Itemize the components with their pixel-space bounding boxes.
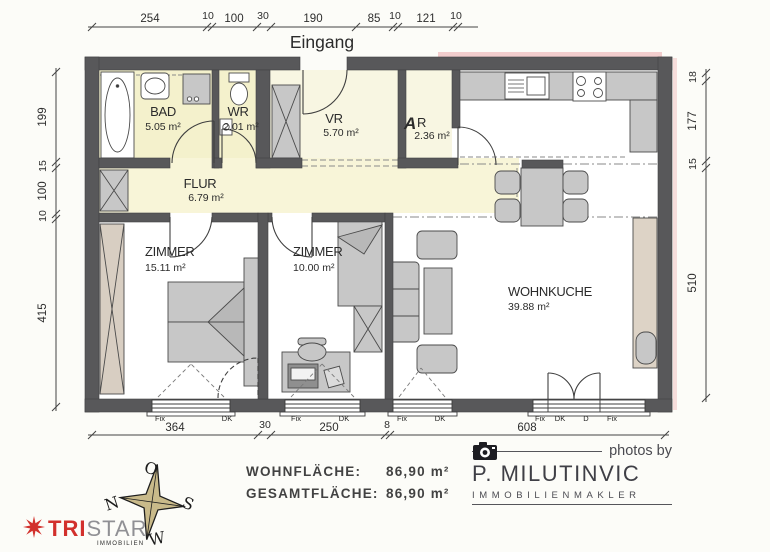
wall-left [85, 57, 99, 412]
w4-d-label: D [583, 414, 589, 423]
agent-subtitle: IMMOBILIENMAKLER [472, 490, 672, 501]
scan-artifact-right [673, 58, 677, 410]
entrance-label: Eingang [290, 32, 354, 52]
dim-right-15: 15 [687, 158, 699, 170]
tristar-logo: TRISTAR IMMOBILIEN [23, 516, 148, 547]
dim-bottom-8: 8 [384, 419, 390, 431]
living-area-row: WOHNFLÄCHE: 86,90 m² [246, 464, 450, 479]
wall-right [658, 57, 672, 412]
room-wohnkueche-name: WOHNKUCHE [508, 284, 593, 299]
w1-dk-label: DK [222, 414, 232, 423]
dim-bottom-608: 608 [517, 422, 536, 434]
w1-fix-label: Fix [155, 414, 165, 423]
camera-icon [473, 442, 497, 460]
room-flur-area: 6.79 m² [188, 192, 224, 204]
room-vr-name: VR [325, 111, 342, 126]
w2-fix-label: Fix [291, 414, 301, 423]
dim-left-15: 15 [37, 160, 49, 172]
bathroom-sink [141, 73, 169, 99]
w3-fix-label: Fix [397, 414, 407, 423]
w2-dk-label: DK [339, 414, 349, 423]
room-ar-name: R [417, 115, 426, 130]
room-zimmer1-name: ZIMMER [145, 244, 194, 259]
dim-left-10: 10 [37, 210, 49, 222]
dim-bottom-30: 30 [259, 419, 271, 431]
total-area-label: GESAMTFLÄCHE: [246, 486, 386, 501]
bathtub [101, 72, 134, 158]
tristar-subtitle: IMMOBILIEN [97, 541, 144, 547]
dim-top-254: 254 [140, 13, 160, 25]
compass-north-label: N [102, 492, 121, 514]
dim-left-415: 415 [37, 303, 49, 322]
bedroom1-wardrobe [100, 224, 124, 394]
armchair-bottom [417, 345, 457, 373]
dim-top-10b: 10 [389, 10, 401, 22]
washing-machine [183, 74, 210, 104]
room-ar-area: 2.36 m² [414, 130, 450, 142]
wall-top-left [85, 57, 300, 70]
room-bad-area: 5.05 m² [145, 121, 181, 133]
room-zimmer2-area: 10.00 m² [293, 262, 335, 274]
kitchen-sink [505, 73, 549, 99]
agent-name-left: P. MILUTIN [472, 461, 599, 487]
dim-top-10c: 10 [450, 10, 462, 22]
living-area-value: 86,90 m² [386, 464, 450, 479]
room-wr-name: WR [227, 104, 248, 119]
dim-bottom-250: 250 [319, 422, 338, 434]
dim-top-85: 85 [368, 13, 381, 25]
single-bed [338, 221, 382, 306]
agent-name-right: VIC [599, 461, 640, 487]
dim-left-100: 100 [37, 181, 49, 200]
dim-top-30: 30 [257, 10, 269, 22]
bedroom2-wardrobe [354, 306, 382, 352]
total-area-row: GESAMTFLÄCHE: 86,90 m² [246, 486, 450, 501]
broker-logo: photos by P. MILUTIN VIC IMMOBILIENMAKLE… [472, 442, 672, 505]
floorplan-page: 254 10 100 30 190 85 10 121 10 199 15 10… [0, 0, 770, 552]
w4-fix2-label: Fix [607, 414, 617, 423]
w4-dk-label: DK [555, 414, 565, 423]
scan-artifact-top [438, 52, 662, 57]
dim-bottom-364: 364 [165, 422, 185, 434]
compass-west-label: W [147, 527, 168, 549]
room-bad-name: BAD [150, 104, 176, 119]
photos-by-label: photos by [609, 443, 672, 459]
room-zimmer2-name: ZIMMER [293, 244, 342, 259]
area-summary: WOHNFLÄCHE: 86,90 m² GESAMTFLÄCHE: 86,90… [246, 464, 450, 508]
stove [573, 72, 606, 101]
room-vr-area: 5.70 m² [323, 127, 359, 139]
dim-right-18: 18 [687, 71, 699, 83]
dim-top-10a: 10 [202, 10, 214, 22]
window-living-right-with-door [528, 400, 650, 416]
sofa [389, 262, 419, 342]
dim-top-121: 121 [416, 13, 435, 25]
room-zimmer1-area: 15.11 m² [145, 262, 186, 274]
room-flur-name: FLUR [184, 176, 217, 191]
dim-top-190: 190 [303, 13, 322, 25]
dining-wall-stub [522, 160, 563, 168]
photos-by-row: photos by [472, 442, 672, 460]
agent-name: P. MILUTIN VIC [472, 461, 672, 487]
dim-right-177: 177 [687, 111, 699, 130]
compass-south-label: S [180, 493, 197, 515]
sideboard [633, 218, 657, 368]
wall-top-right [347, 57, 672, 70]
tristar-star-icon [23, 516, 45, 538]
room-wr-area: 2.01 m² [223, 121, 259, 133]
total-area-value: 86,90 m² [386, 486, 450, 501]
dim-right-510: 510 [687, 273, 699, 292]
w3-dk-label: DK [435, 414, 445, 423]
dim-top-100: 100 [224, 13, 243, 25]
living-area-label: WOHNFLÄCHE: [246, 464, 386, 479]
vr-wardrobe [272, 85, 300, 158]
dim-left-199: 199 [37, 107, 49, 126]
room-wohnkueche-area: 39.88 m² [508, 301, 550, 313]
hall-wardrobe [100, 170, 128, 211]
w4-fix1-label: Fix [535, 414, 545, 423]
toilet [229, 73, 249, 105]
rule-bottom [472, 504, 672, 505]
armchair-top [417, 231, 457, 259]
tristar-wordmark: TRISTAR [48, 516, 148, 541]
coffee-table [424, 268, 452, 334]
